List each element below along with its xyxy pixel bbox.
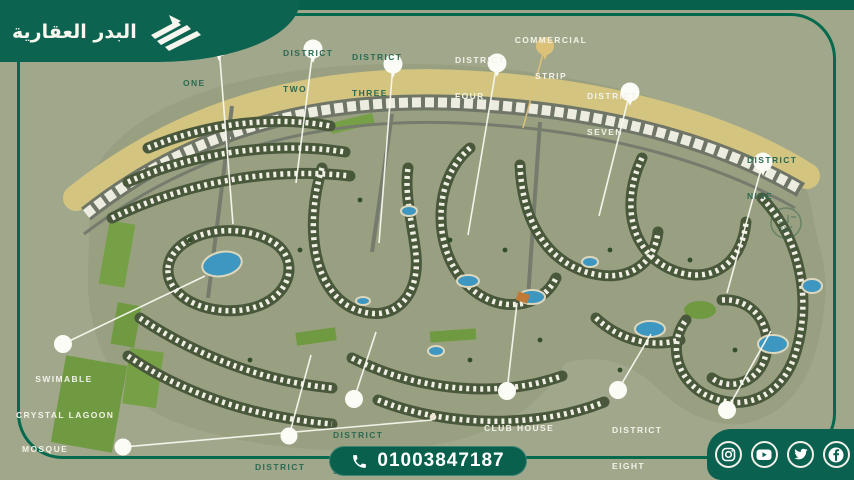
- label-district-five: DISTRICT FIVE: [255, 437, 305, 480]
- mosque-pin: [115, 439, 132, 456]
- label-district-eight: DISTRICT EIGHT: [612, 400, 662, 480]
- master-plan-map: [0, 0, 854, 480]
- label-line: DISTRICT: [333, 429, 383, 441]
- label-line: TWO: [283, 83, 333, 95]
- label-line: DISTRICT: [352, 51, 402, 63]
- label-line: FOUR: [455, 90, 505, 102]
- phone-contact-button[interactable]: 01003847187: [329, 446, 527, 476]
- label-line: DISTRICT: [587, 90, 637, 102]
- label-line: ONE: [183, 77, 233, 89]
- label-line: NINE: [747, 190, 797, 202]
- instagram-icon[interactable]: [715, 441, 742, 468]
- social-media-panel: [707, 429, 854, 480]
- phone-icon: [351, 453, 368, 470]
- label-line: MOSQUE: [22, 443, 68, 455]
- youtube-icon[interactable]: [751, 441, 778, 468]
- label-line: DISTRICT: [255, 461, 305, 473]
- label-district-three: DISTRICT THREE: [352, 27, 402, 123]
- masterplan-flyer: DISTRICT ONE DISTRICT TWO DISTRICT THREE…: [0, 0, 854, 480]
- district-eight-pin: [609, 381, 627, 399]
- label-district-two: DISTRICT TWO: [283, 23, 333, 119]
- label-line: DISTRICT: [283, 47, 333, 59]
- label-line: SEVEN: [587, 126, 637, 138]
- label-line: THREE: [352, 87, 402, 99]
- label-mosque: MOSQUE: [22, 419, 68, 479]
- label-line: DISTRICT: [747, 154, 797, 166]
- label-commercial-strip: COMMERCIAL STRIP: [505, 10, 597, 106]
- label-line: SWIMABLE: [16, 373, 112, 385]
- label-line: STRIP: [505, 70, 597, 82]
- phone-number: 01003847187: [377, 450, 504, 472]
- label-district-seven: DISTRICT SEVEN: [587, 66, 637, 162]
- label-district-four: DISTRICT FOUR: [455, 30, 505, 126]
- label-line: DISTRICT: [455, 54, 505, 66]
- twitter-icon[interactable]: [787, 441, 814, 468]
- calligraphy-seal-watermark: [768, 204, 804, 242]
- brand-name-arabic: البدر العقارية: [12, 21, 137, 43]
- label-line: DISTRICT: [612, 424, 662, 436]
- label-line: COMMERCIAL: [505, 34, 597, 46]
- facebook-icon[interactable]: [823, 441, 850, 468]
- label-line: EIGHT: [612, 460, 662, 472]
- brand-building-icon: [147, 9, 203, 53]
- label-line: CLUB HOUSE: [484, 422, 554, 434]
